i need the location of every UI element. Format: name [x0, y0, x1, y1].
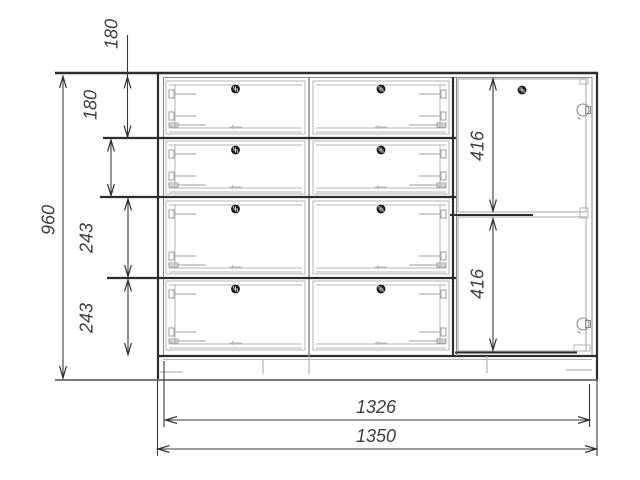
cabinet-drawing: 960 180 180 243 243 416 416 — [0, 0, 640, 480]
screw-knob-icon — [231, 146, 240, 155]
screw-knob-icon — [518, 86, 527, 95]
dim-label-lower-door: 416 — [467, 268, 487, 299]
dim-label-bottom-drawer: 243 — [76, 303, 96, 334]
dim-label-third-drawer: 243 — [76, 223, 96, 254]
screw-knob-icon — [231, 285, 240, 294]
screw-knob-icon — [377, 285, 386, 294]
screw-knob-icon — [231, 85, 240, 94]
dim-label-overall-height: 960 — [38, 205, 58, 235]
technical-drawing-canvas: 960 180 180 243 243 416 416 — [0, 0, 640, 480]
screw-knob-icon — [231, 205, 240, 214]
dim-label-second-drawer: 180 — [80, 90, 100, 120]
dim-label-overall-width: 1350 — [356, 426, 396, 446]
screw-knob-icon — [377, 85, 386, 94]
screw-knob-icon — [377, 205, 386, 214]
dim-label-top-drawer: 180 — [101, 19, 121, 49]
dim-label-upper-door: 416 — [467, 130, 487, 161]
screw-knob-icon — [377, 146, 386, 155]
dim-label-inner-width: 1326 — [356, 397, 397, 417]
